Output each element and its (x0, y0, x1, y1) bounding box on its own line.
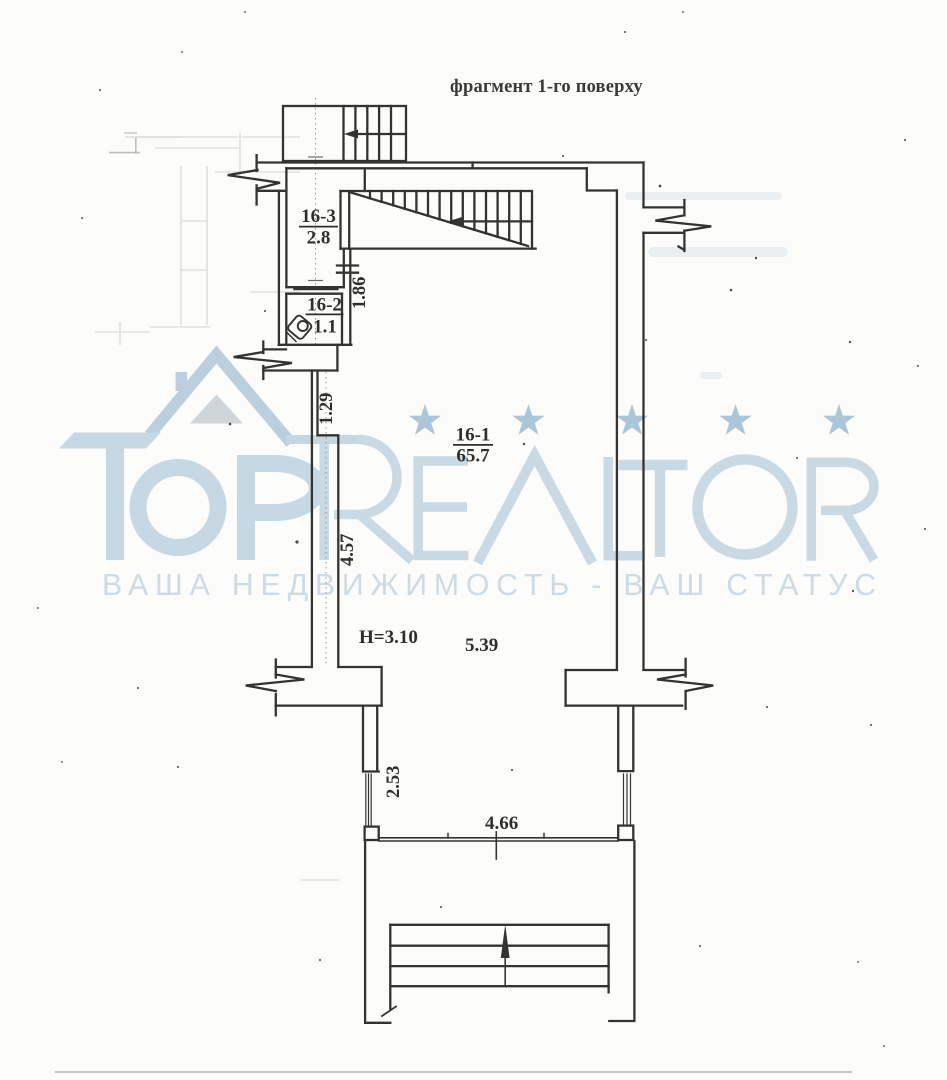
svg-text:H=3.10: H=3.10 (359, 627, 418, 648)
svg-text:4.57: 4.57 (338, 534, 358, 566)
svg-text:ВАША НЕДВИЖИМОСТЬ - ВАШ СТАТУС: ВАША НЕДВИЖИМОСТЬ - ВАШ СТАТУС (102, 567, 883, 602)
svg-text:16-1: 16-1 (456, 425, 491, 446)
svg-text:16-2: 16-2 (307, 295, 342, 316)
svg-text:16-3: 16-3 (301, 206, 336, 227)
svg-text:4.66: 4.66 (485, 813, 518, 834)
svg-text:5.39: 5.39 (465, 635, 498, 656)
svg-text:фрагмент 1-го поверху: фрагмент 1-го поверху (450, 77, 643, 97)
svg-text:2.53: 2.53 (384, 766, 404, 798)
svg-text:2.8: 2.8 (307, 228, 331, 249)
svg-text:1.86: 1.86 (350, 277, 370, 309)
svg-text:65.7: 65.7 (456, 446, 490, 467)
svg-text:1.29: 1.29 (317, 393, 337, 425)
svg-text:1.1: 1.1 (313, 317, 337, 338)
